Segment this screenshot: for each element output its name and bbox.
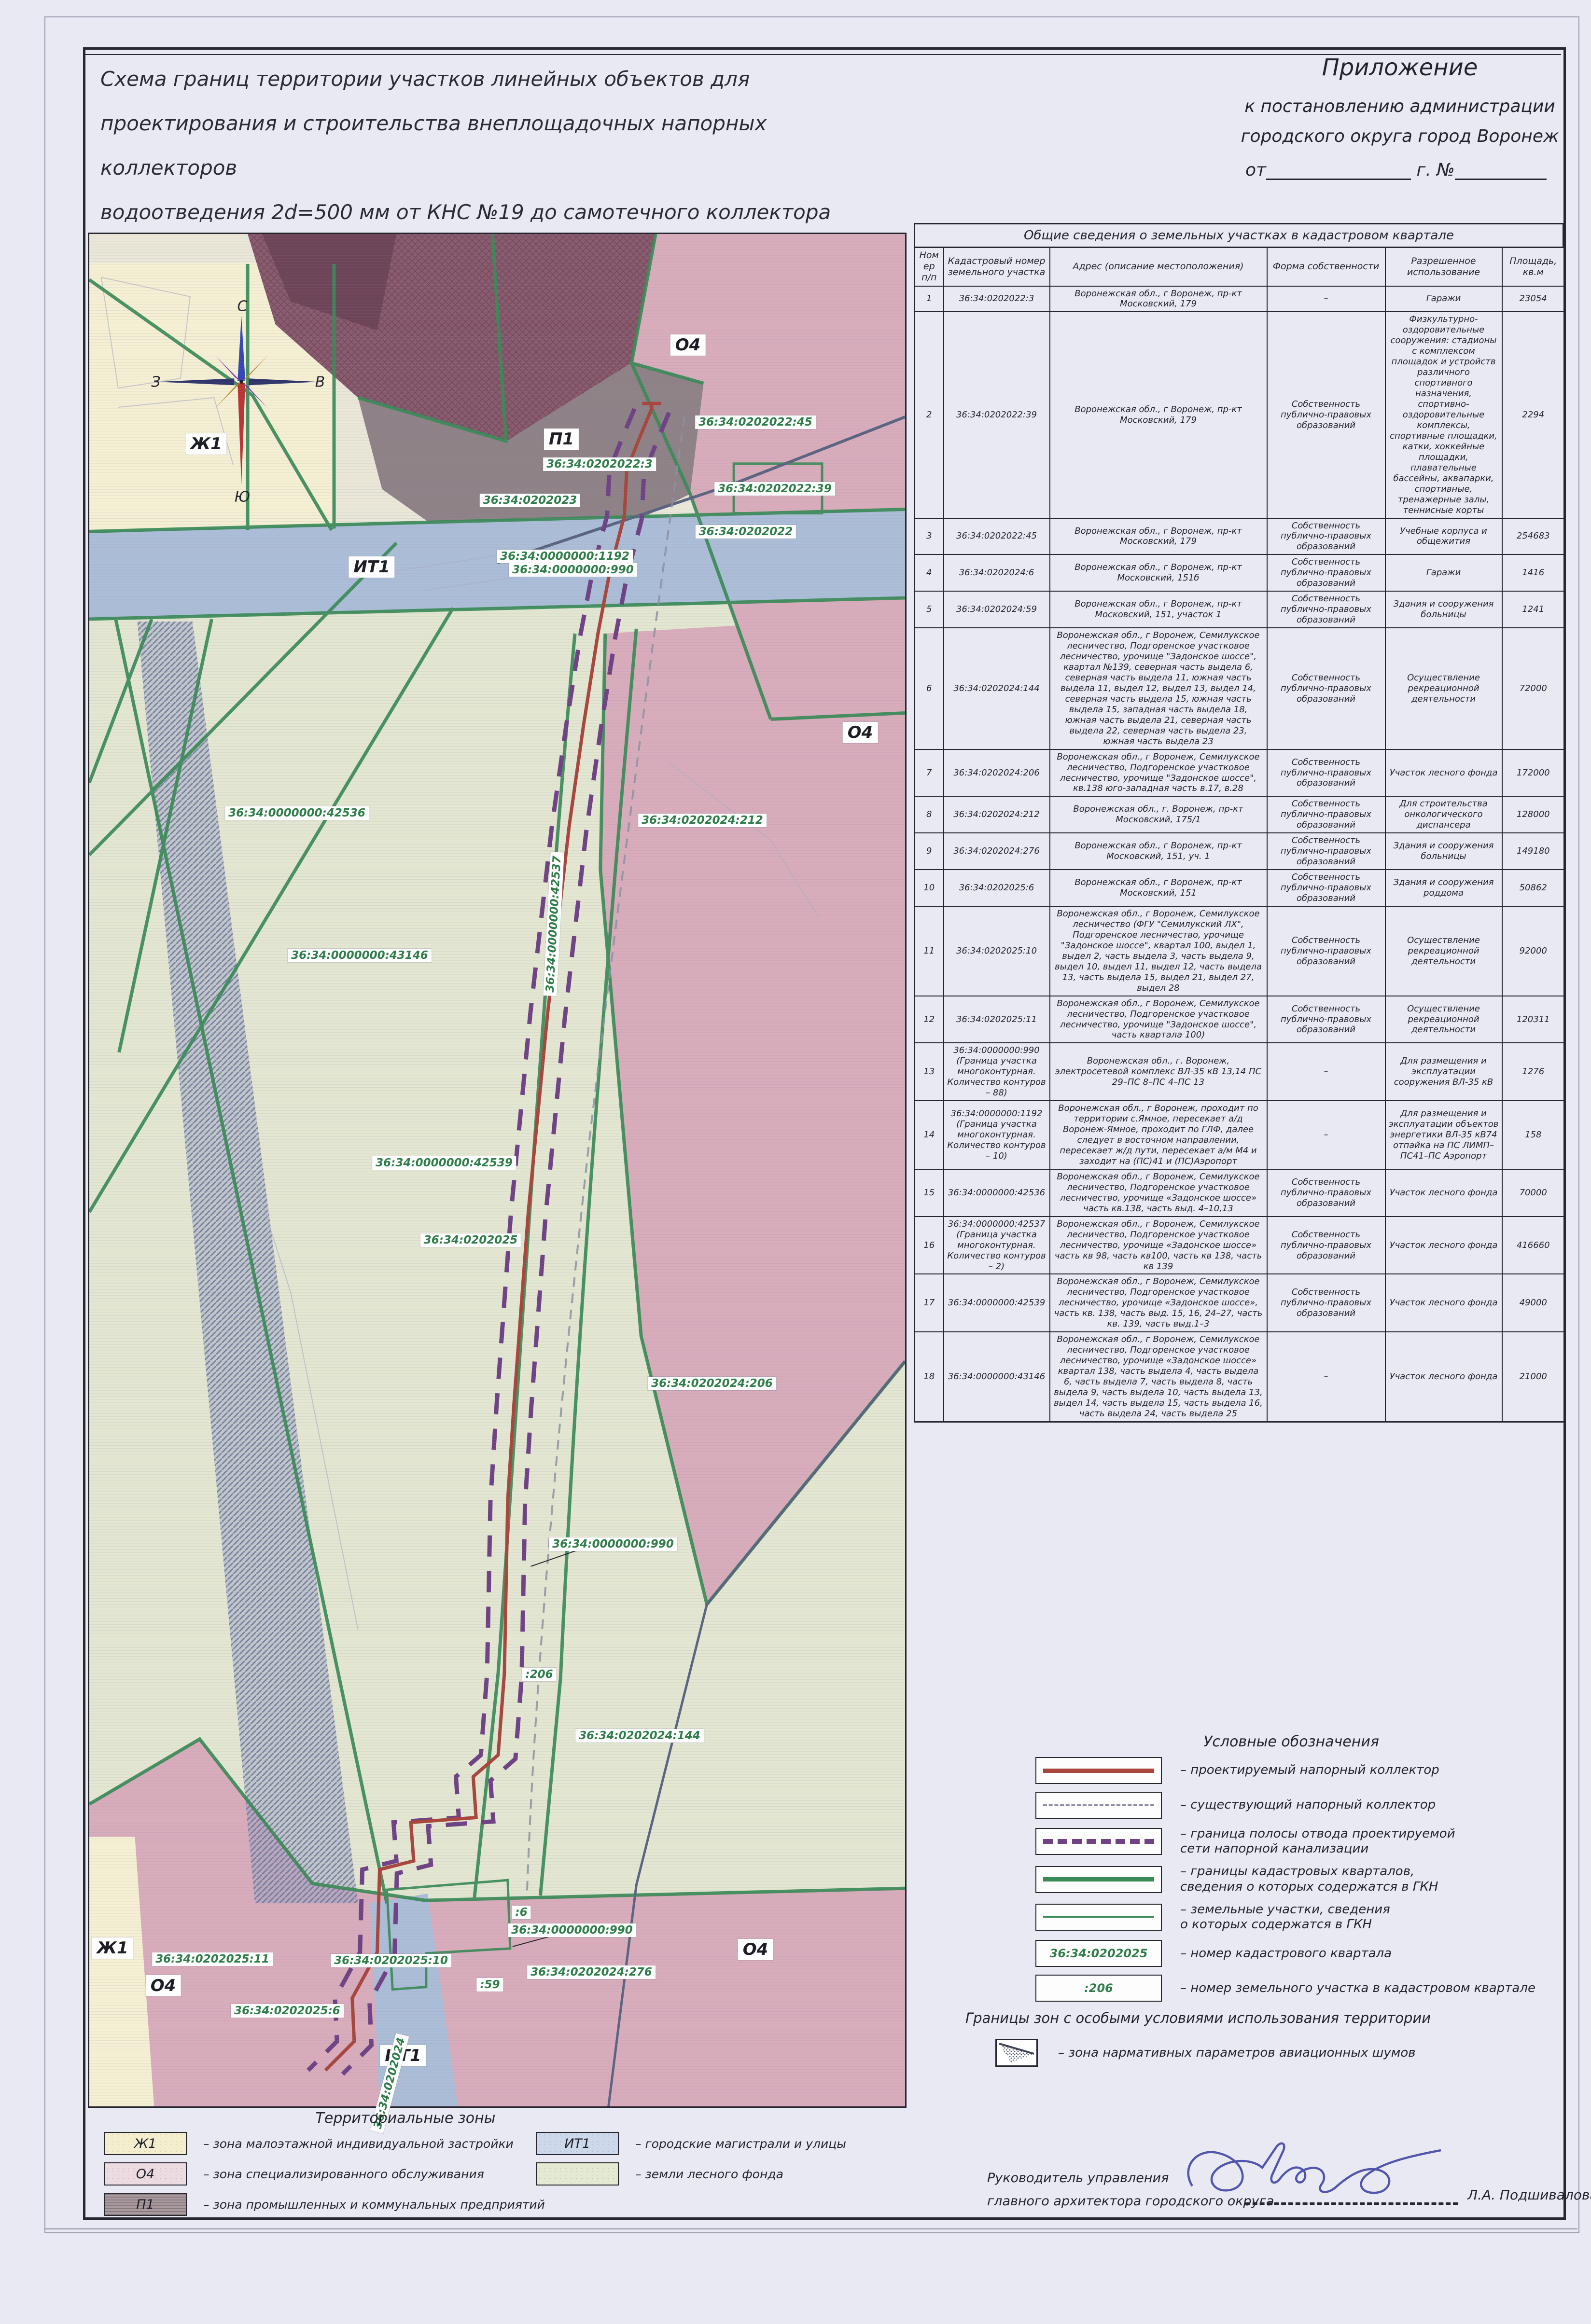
parcel-label: 36:34:0000000:990 [508,1923,636,1937]
zone-code: О4 [136,2167,154,2182]
cell-num: 7 [915,749,944,797]
cell-use: Физкультурно-оздоровительные сооружения:… [1385,312,1502,518]
territorial-zones-section: Территориальные зоны Ж1 – зона малоэтажн… [97,2110,917,2133]
cell-use: Осуществление рекреационной деятельности [1385,996,1502,1043]
cell-area: 416660 [1502,1217,1565,1274]
parcel-label: 36:34:0202022:3 [543,457,656,471]
table-row: 936:34:0202024:276Воронежская обл., г Во… [915,833,1565,870]
cell-ownership: Собственность публично-правовых образова… [1267,1217,1385,1274]
parcel-label: 36:34:0202024:144 [575,1729,704,1743]
parcel-label: 36:34:0202024:206 [648,1377,776,1390]
cell-cadastral: 36:34:0202024:59 [944,591,1050,628]
cell-ownership: Собственность публично-правовых образова… [1267,312,1385,518]
zone-label-o4-right: О4 [843,722,878,743]
cell-address: Воронежская обл., г Воронеж, пр-кт Моско… [1050,518,1267,555]
parcel-label: :6 [512,1906,530,1919]
annex-date-line: от г. № [1232,160,1568,180]
legend-item-label: – земельные участки, сведения о которых … [1180,1902,1390,1932]
signature-block: Руководитель управления главного архитек… [985,2138,1583,2215]
table-row: 1136:34:0202025:10Воронежская обл., г Во… [915,906,1565,996]
cell-ownership: Собственность публично-правовых образова… [1267,833,1385,870]
cell-use: Осуществление рекреационной деятельности [1385,628,1502,749]
territorial-zone-item: П1 – зона промышленных и коммунальных пр… [104,2193,545,2216]
zone-label-zh1-bottom: Ж1 [92,1937,133,1959]
cell-cadastral: 36:34:0202024:212 [944,796,1050,833]
cell-ownership: – [1267,1332,1385,1422]
cell-use: Здания и сооружения роддома [1385,870,1502,906]
cell-area: 23054 [1502,286,1565,312]
cell-use: Участок лесного фонда [1385,749,1502,797]
table-row: 636:34:0202024:144Воронежская обл., г Во… [915,628,1565,749]
legend-item: – земельные участки, сведения о которых … [1035,1902,1547,1932]
quarter-label: 36:34:0202023 [480,494,580,507]
cell-area: 1276 [1502,1043,1565,1101]
parcel-info-table: Общие сведения о земельных участках в ка… [914,223,1564,1423]
date-blank [1266,164,1411,180]
cell-address: Воронежская обл., г Воронеж, Семилукское… [1050,1217,1267,1274]
territorial-zones-title: Территориальные зоны [97,2110,714,2127]
parcel-number-sample: :206 [1035,1975,1162,2002]
annex-year-label: г. [1416,160,1431,180]
cell-address: Воронежская обл., г Воронеж, Семилукское… [1050,1169,1267,1217]
cell-cadastral: 36:34:0202022:39 [944,312,1050,518]
cell-ownership: – [1267,1043,1385,1101]
cell-use: Для размещения и эксплуатации объектов э… [1385,1101,1502,1169]
annex-number-label: № [1437,160,1454,180]
zone-swatch-zh1: Ж1 [104,2132,187,2155]
cell-area: 2294 [1502,312,1565,518]
title-line: Схема границ территории участков линейны… [100,57,892,101]
territorial-zone-item: О4 – зона специализированного обслуживан… [104,2162,545,2186]
cell-ownership: Собственность публично-правовых образова… [1267,591,1385,628]
cell-area: 149180 [1502,833,1565,870]
cell-area: 254683 [1502,518,1565,555]
cell-ownership: Собственность публично-правовых образова… [1267,518,1385,555]
cell-area: 120311 [1502,996,1565,1043]
cell-address: Воронежская обл., г. Воронеж, электросет… [1050,1043,1267,1101]
cell-address: Воронежская обл., г Воронеж, пр-кт Моско… [1050,870,1267,906]
col-header-address: Адрес (описание местоположения) [1050,248,1267,286]
col-header-ownership: Форма собственности [1267,248,1385,286]
cell-area: 70000 [1502,1169,1565,1217]
cell-num: 8 [915,796,944,833]
legend-item: 36:34:0202025 – номер кадастрового кварт… [1035,1940,1547,1967]
cell-num: 1 [915,286,944,312]
cell-ownership: Собственность публично-правовых образова… [1267,554,1385,591]
table-row: 136:34:0202022:3Воронежская обл., г Воро… [915,286,1565,312]
projected-collector-sample [1035,1757,1162,1784]
aviation-noise-zone-icon [995,2039,1038,2067]
cell-cadastral: 36:34:0202025:6 [944,870,1050,906]
cell-cadastral: 36:34:0202025:10 [944,906,1050,996]
cell-ownership: Собственность публично-правовых образова… [1267,1274,1385,1332]
legend-item-label: – номер земельного участка в кадастровом… [1180,1981,1535,1996]
cell-address: Воронежская обл., г. Воронеж, пр-кт Моск… [1050,796,1267,833]
parcel-label: 36:34:0000000:43146 [288,949,432,962]
cell-area: 50862 [1502,870,1565,906]
cell-num: 5 [915,591,944,628]
cell-num: 4 [915,554,944,591]
zone-label-p1: П1 [544,429,579,450]
cell-address: Воронежская обл., г Воронеж, пр-кт Моско… [1050,554,1267,591]
legend-item-label: – границы кадастровых кварталов, сведени… [1180,1864,1438,1894]
cell-area: 49000 [1502,1274,1565,1332]
cell-cadastral: 36:34:0202025:11 [944,996,1050,1043]
col-header-area: Площадь, кв.м [1502,248,1565,286]
cell-ownership: Собственность публично-правовых образова… [1267,906,1385,996]
compass-east-label: В [315,374,325,391]
map-graphics [89,234,905,2106]
cell-use: Участок лесного фонда [1385,1332,1502,1422]
cell-area: 72000 [1502,628,1565,749]
legend-item-label: – граница полосы отвода проектируемой се… [1180,1826,1455,1856]
parcel-label: 36:34:0000000:42539 [372,1156,516,1170]
table-row: 536:34:0202024:59Воронежская обл., г Вор… [915,591,1565,628]
special-zone-item: – зона нармативных параметров авиационны… [995,2039,1564,2067]
title-line: проектирования и строительства внеплощад… [100,101,892,190]
cell-ownership: Собственность публично-правовых образова… [1267,870,1385,906]
zone-swatch-it1: ИТ1 [536,2132,619,2155]
table-row: 836:34:0202024:212Воронежская обл., г. В… [915,796,1565,833]
quarter-number-sample-text: 36:34:0202025 [1050,1947,1148,1960]
cell-ownership: Собственность публично-правовых образова… [1267,749,1385,797]
signature-autograph [1178,2133,1448,2210]
special-zones-section: Границы зон с особыми условиями использо… [965,2010,1564,2067]
cell-num: 17 [915,1274,944,1332]
table-row: 1736:34:0000000:42539Воронежская обл., г… [915,1274,1565,1332]
cell-num: 14 [915,1101,944,1169]
zone-item-label: – зона специализированного обслуживания [203,2167,484,2181]
map-legend: Условные обозначения – проектируемый нап… [1035,1733,1547,2009]
cell-num: 6 [915,628,944,749]
cell-address: Воронежская обл., г Воронеж, пр-кт Моско… [1050,312,1267,518]
territorial-zone-item: ИТ1 – городские магистрали и улицы [536,2132,846,2155]
cell-cadastral: 36:34:0000000:43146 [944,1332,1050,1422]
zone-item-label: – зона промышленных и коммунальных предп… [203,2198,545,2212]
legend-item-label: – существующий напорный коллектор [1180,1798,1436,1812]
cell-cadastral: 36:34:0202024:144 [944,628,1050,749]
parcel-label: 36:34:0202025:11 [152,1952,273,1966]
cadastral-map: С Ю З В Ж1 П1 О4 О4 О4 О4 Ж1 ИТ1 ИТ1 36:… [88,233,907,2108]
quarter-boundary-sample [1035,1866,1162,1893]
cell-use: Осуществление рекреационной деятельности [1385,906,1502,996]
cell-address: Воронежская обл., г Воронеж, проходит по… [1050,1101,1267,1169]
zone-swatch-p1: П1 [104,2193,187,2216]
table-grid: Номер п/п Кадастровый номер земельного у… [914,247,1565,1423]
legend-item: – существующий напорный коллектор [1035,1792,1547,1819]
legend-item-label: – номер кадастрового квартала [1180,1946,1392,1961]
cell-address: Воронежская обл., г Воронеж, Семилукское… [1050,996,1267,1043]
cell-use: Участок лесного фонда [1385,1274,1502,1332]
sheet: Схема границ территории участков линейны… [0,0,1591,2324]
existing-collector-sample [1035,1792,1162,1819]
cell-num: 2 [915,312,944,518]
cell-area: 128000 [1502,796,1565,833]
cell-cadastral: 36:34:0000000:990 (Граница участка много… [944,1043,1050,1101]
table-row: 1336:34:0000000:990 (Граница участка мно… [915,1043,1565,1101]
territorial-zone-item: – земли лесного фонда [536,2162,846,2186]
legend-item: – проектируемый напорный коллектор [1035,1757,1547,1784]
cell-cadastral: 36:34:0202022:45 [944,518,1050,555]
cell-ownership: – [1267,286,1385,312]
cell-area: 1241 [1502,591,1565,628]
signer-name: Л.А. Подшивалова [1467,2187,1591,2203]
cell-area: 1416 [1502,554,1565,591]
cell-area: 21000 [1502,1332,1565,1422]
cell-ownership: Собственность публично-правовых образова… [1267,628,1385,749]
special-zone-label: – зона нармативных параметров авиационны… [1058,2046,1416,2060]
zone-label-o4-bottom-right: О4 [738,1939,773,1960]
table-row: 1236:34:0202025:11Воронежская обл., г Во… [915,996,1565,1043]
table-row: 436:34:0202024:6Воронежская обл., г Воро… [915,554,1565,591]
legend-item: – граница полосы отвода проектируемой се… [1035,1826,1547,1856]
cell-use: Гаражи [1385,286,1502,312]
parcel-label: :206 [522,1668,556,1681]
zone-item-label: – земли лесного фонда [635,2167,783,2181]
zone-swatch-o4: О4 [104,2162,187,2186]
zone-swatch-forest [536,2162,619,2186]
parcel-label: 36:34:0000000:990 [549,1537,677,1551]
cell-num: 3 [915,518,944,555]
cell-num: 9 [915,833,944,870]
zone-code: Ж1 [134,2136,156,2151]
annex-from-label: от [1245,160,1266,180]
cell-address: Воронежская обл., г Воронеж, пр-кт Моско… [1050,591,1267,628]
cell-area: 172000 [1502,749,1565,797]
cell-ownership: Собственность публично-правовых образова… [1267,796,1385,833]
zone-item-label: – городские магистрали и улицы [635,2137,846,2151]
cell-cadastral: 36:34:0202024:6 [944,554,1050,591]
col-header-use: Разрешенное использование [1385,248,1502,286]
territorial-zone-item: Ж1 – зона малоэтажной индивидуальной зас… [104,2132,545,2155]
parcel-boundary-sample [1035,1904,1162,1931]
right-of-way-sample [1035,1828,1162,1855]
zone-label-o4-top: О4 [670,334,706,356]
table-row: 336:34:0202022:45Воронежская обл., г Вор… [915,518,1565,555]
quarter-label: 36:34:0202022 [696,525,796,539]
cell-cadastral: 36:34:0202022:3 [944,286,1050,312]
cell-address: Воронежская обл., г Воронеж, Семилукское… [1050,749,1267,797]
parcel-label: 36:34:0202022:39 [714,482,835,496]
col-header-num: Номер п/п [915,248,944,286]
legend-item: – границы кадастровых кварталов, сведени… [1035,1864,1547,1894]
parcel-label: :59 [476,1978,503,1992]
cell-cadastral: 36:34:0202024:276 [944,833,1050,870]
legend-item-label: – проектируемый напорный коллектор [1180,1763,1439,1778]
zone-code: ИТ1 [564,2136,590,2151]
table-row: 736:34:0202024:206Воронежская обл., г Во… [915,749,1565,797]
parcel-label: 36:34:0202022:45 [695,415,816,429]
cell-num: 12 [915,996,944,1043]
legend-title: Условные обозначения [1035,1733,1547,1750]
cell-cadastral: 36:34:0000000:42537 (Граница участка мно… [944,1217,1050,1274]
zone-label-zh1: Ж1 [185,433,226,455]
zone-label-o4-bottom-left: О4 [146,1975,181,1996]
cell-use: Учебные корпуса и общежития [1385,518,1502,555]
cell-use: Для размещения и эксплуатации сооружения… [1385,1043,1502,1101]
table-title: Общие сведения о земельных участках в ка… [914,223,1564,247]
cell-use: Гаражи [1385,554,1502,591]
cell-num: 18 [915,1332,944,1422]
table-row: 1036:34:0202025:6Воронежская обл., г Вор… [915,870,1565,906]
cell-cadastral: 36:34:0000000:42539 [944,1274,1050,1332]
parcel-label: 36:34:0202025:10 [331,1954,451,1967]
cell-num: 15 [915,1169,944,1217]
cell-ownership: – [1267,1101,1385,1169]
parcel-label: 36:34:0202024:276 [527,1965,656,1979]
annex-block: Приложение к постановлению администрации… [1232,54,1568,180]
parcel-label: 36:34:0000000:1192 [497,550,633,563]
cell-address: Воронежская обл., г Воронеж, Семилукское… [1050,1274,1267,1332]
cell-ownership: Собственность публично-правовых образова… [1267,996,1385,1043]
page-bottom-edge [44,2228,1577,2229]
cell-num: 11 [915,906,944,996]
parcel-label: 36:34:0000000:990 [509,563,637,577]
parcel-label: 36:34:0000000:42536 [225,806,369,820]
zone-item-label: – зона малоэтажной индивидуальной застро… [203,2137,514,2151]
parcel-label: 36:34:0202024:212 [638,814,767,827]
compass-west-label: З [151,374,160,391]
legend-item: :206 – номер земельного участка в кадаст… [1035,1975,1547,2002]
signature-line [1245,2202,1458,2205]
annex-title: Приложение [1232,54,1568,81]
cell-address: Воронежская обл., г Воронеж, Семилукское… [1050,1332,1267,1422]
cell-cadastral: 36:34:0000000:1192 (Граница участка мног… [944,1101,1050,1169]
cell-num: 13 [915,1043,944,1101]
parcel-label: 36:34:0202025:6 [231,2004,344,2018]
cell-cadastral: 36:34:0202024:206 [944,749,1050,797]
cell-address: Воронежская обл., г Воронеж, Семилукское… [1050,906,1267,996]
zone-code: П1 [136,2197,154,2212]
zone-label-it1-top: ИТ1 [349,556,394,578]
table-row: 1836:34:0000000:43146Воронежская обл., г… [915,1332,1565,1422]
cell-use: Здания и сооружения больницы [1385,591,1502,628]
annex-line: к постановлению администрации [1232,92,1568,122]
cell-use: Здания и сооружения больницы [1385,833,1502,870]
special-zones-title: Границы зон с особыми условиями использо… [965,2010,1564,2026]
cell-use: Участок лесного фонда [1385,1169,1502,1217]
compass-south-label: Ю [235,489,250,506]
cell-ownership: Собственность публично-правовых образова… [1267,1169,1385,1217]
cell-address: Воронежская обл., г Воронеж, пр-кт Моско… [1050,833,1267,870]
quarter-label: 36:34:0202025 [420,1233,521,1247]
cell-address: Воронежская обл., г Воронеж, пр-кт Моско… [1050,286,1267,312]
table-header-row: Номер п/п Кадастровый номер земельного у… [915,248,1565,286]
cell-num: 16 [915,1217,944,1274]
cell-use: Участок лесного фонда [1385,1217,1502,1274]
cell-num: 10 [915,870,944,906]
number-blank [1455,164,1547,180]
col-header-cadastral: Кадастровый номер земельного участка [944,248,1050,286]
cell-cadastral: 36:34:0000000:42536 [944,1169,1050,1217]
quarter-number-sample: 36:34:0202025 [1035,1940,1162,1967]
annex-line: городского округа город Воронеж [1232,122,1568,152]
cell-use: Для строительства онкологического диспан… [1385,796,1502,833]
cell-address: Воронежская обл., г Воронеж, Семилукское… [1050,628,1267,749]
table-row: 1536:34:0000000:42536Воронежская обл., г… [915,1169,1565,1217]
cell-area: 158 [1502,1101,1565,1169]
table-row: 1436:34:0000000:1192 (Граница участка мн… [915,1101,1565,1169]
cell-area: 92000 [1502,906,1565,996]
table-row: 1636:34:0000000:42537 (Граница участка м… [915,1217,1565,1274]
compass-north-label: С [237,298,248,315]
parcel-number-sample-text: :206 [1084,1981,1113,1995]
table-row: 236:34:0202022:39Воронежская обл., г Вор… [915,312,1565,518]
